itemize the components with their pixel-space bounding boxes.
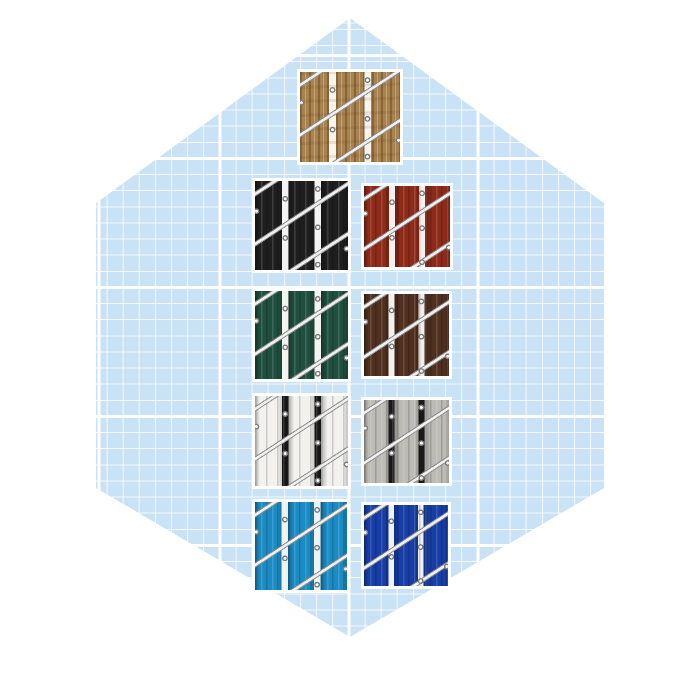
- swatch-sky-blue-slats: [252, 499, 350, 593]
- swatch-white-slats: [252, 393, 351, 489]
- product-collage-scene: [0, 0, 700, 700]
- swatch-brown-slats: [361, 291, 452, 379]
- wire-knuckles: [364, 505, 448, 586]
- wire-knuckles: [364, 294, 449, 376]
- privacy-slats: [364, 505, 448, 586]
- privacy-slats: [364, 186, 450, 267]
- swatch-gray-slats: [361, 397, 452, 486]
- swatch-black-slats: [252, 178, 351, 273]
- wire-knuckles: [364, 400, 449, 483]
- wire-knuckles: [255, 502, 347, 590]
- swatch-dark-red-slats: [361, 183, 453, 270]
- swatch-beige-wood-slats: [297, 69, 403, 165]
- privacy-slats: [364, 294, 449, 376]
- wire-knuckles: [255, 396, 348, 486]
- privacy-slats: [300, 72, 400, 162]
- wire-knuckles: [255, 291, 348, 379]
- wire-knuckles: [300, 72, 400, 162]
- swatch-royal-blue-slats: [361, 502, 451, 589]
- privacy-slats: [255, 291, 348, 379]
- wire-knuckles: [255, 181, 348, 270]
- privacy-slats: [255, 396, 348, 486]
- privacy-slats: [255, 502, 347, 590]
- privacy-slats: [364, 400, 449, 483]
- swatch-forest-green-slats: [252, 288, 351, 382]
- privacy-slats: [255, 181, 348, 270]
- wire-knuckles: [364, 186, 450, 267]
